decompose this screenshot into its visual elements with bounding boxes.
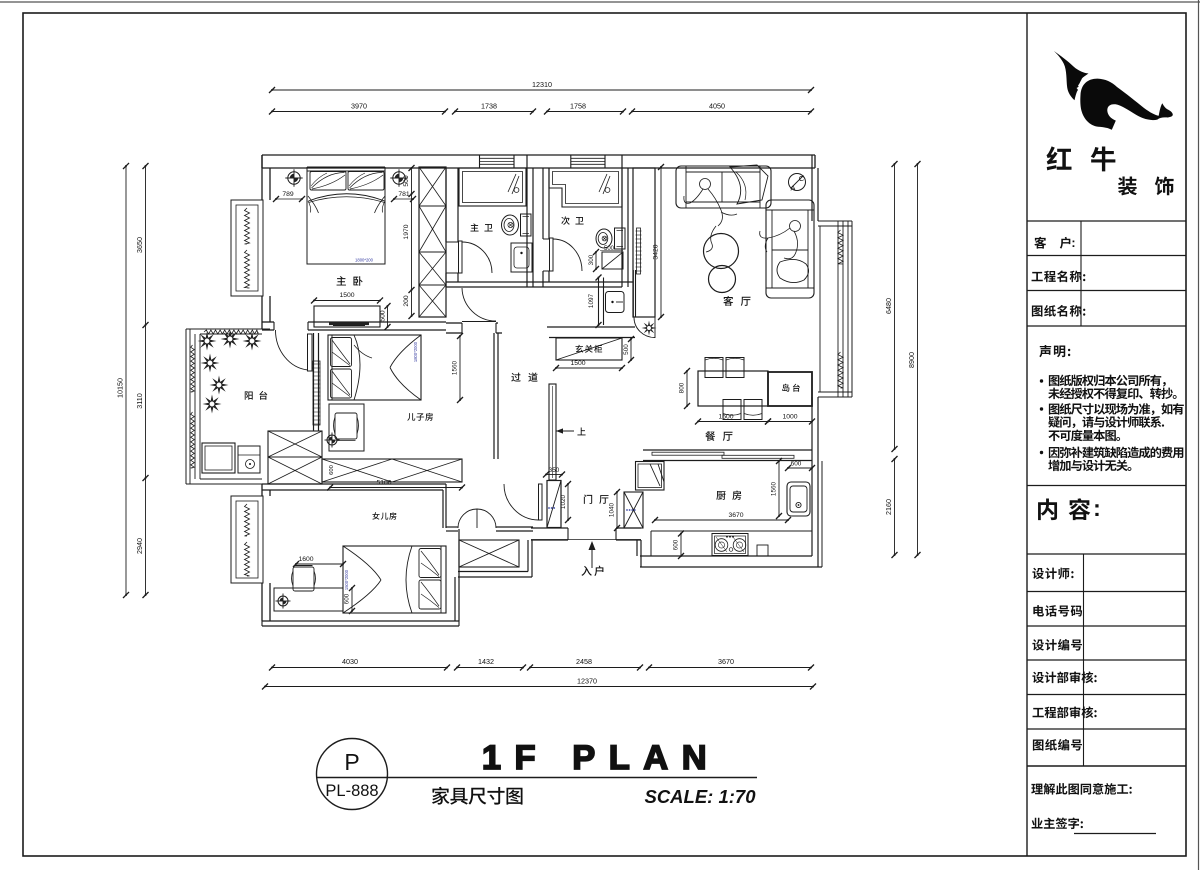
svg-text:8900: 8900 (907, 352, 916, 368)
svg-text:3670: 3670 (728, 512, 743, 519)
svg-text:2940: 2940 (135, 538, 144, 554)
svg-text:500: 500 (380, 310, 387, 322)
svg-text:500: 500 (403, 175, 410, 187)
svg-text:3650: 3650 (135, 237, 144, 253)
svg-text:1800*200: 1800*200 (355, 258, 374, 263)
svg-text:789: 789 (282, 191, 294, 198)
svg-text:1758: 1758 (570, 102, 586, 111)
svg-text:300: 300 (588, 254, 595, 265)
svg-text:500: 500 (604, 246, 615, 252)
svg-text:1000: 1000 (782, 414, 797, 421)
svg-text:1970: 1970 (403, 224, 410, 239)
svg-text:1738: 1738 (481, 102, 497, 111)
svg-text:2458: 2458 (576, 657, 592, 666)
svg-text:350: 350 (549, 467, 560, 474)
svg-text:500: 500 (623, 344, 630, 355)
svg-text:12370: 12370 (577, 677, 597, 686)
svg-text:1560: 1560 (771, 481, 778, 496)
svg-text:4030: 4030 (342, 657, 358, 666)
svg-text:3110: 3110 (135, 393, 144, 408)
svg-text:600: 600 (673, 539, 680, 550)
svg-text::: : (1071, 236, 1075, 250)
svg-text:1800*2000: 1800*2000 (413, 341, 418, 362)
svg-text:781: 781 (398, 191, 410, 198)
svg-text:SCALE: 1:70: SCALE: 1:70 (644, 786, 756, 807)
svg-text:200: 200 (403, 295, 410, 307)
svg-text:1600: 1600 (298, 556, 313, 563)
svg-text:5100: 5100 (376, 480, 391, 487)
svg-text:1040: 1040 (609, 502, 616, 517)
svg-text:4050: 4050 (709, 102, 725, 111)
svg-text:600: 600 (329, 465, 335, 475)
svg-text:600: 600 (344, 593, 351, 604)
svg-text:2160: 2160 (884, 499, 893, 515)
svg-text:1560: 1560 (452, 360, 459, 375)
svg-text:800: 800 (679, 382, 686, 393)
svg-text:1500: 1500 (570, 360, 585, 367)
svg-text:PL-888: PL-888 (325, 782, 378, 800)
svg-text:12310: 12310 (532, 80, 552, 89)
svg-text:6480: 6480 (884, 298, 893, 314)
svg-text:1097: 1097 (588, 293, 595, 308)
svg-text:10150: 10150 (116, 378, 125, 398)
svg-text::: : (1093, 495, 1101, 521)
svg-text:1020: 1020 (560, 494, 567, 509)
svg-text:C: C (799, 174, 805, 183)
svg-text:1600: 1600 (718, 414, 733, 421)
svg-text:1500: 1500 (339, 292, 354, 299)
svg-text:1F PLAN: 1F PLAN (482, 739, 720, 777)
svg-text:A: A (790, 184, 795, 193)
svg-text:P: P (344, 749, 359, 775)
svg-text:3420: 3420 (653, 244, 660, 259)
svg-text:1432: 1432 (478, 657, 494, 666)
svg-text:1500*2000: 1500*2000 (344, 569, 349, 590)
svg-text:3670: 3670 (718, 657, 734, 666)
svg-text:600: 600 (791, 461, 802, 468)
svg-text:3970: 3970 (351, 102, 367, 111)
